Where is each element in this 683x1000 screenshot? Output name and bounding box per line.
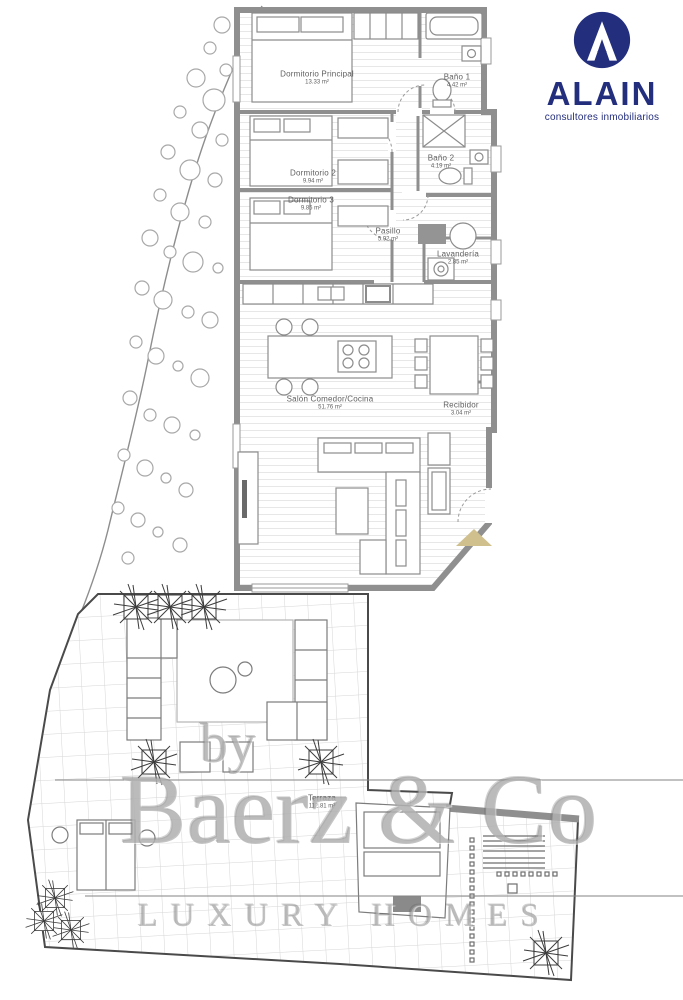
- kitchen-counter: [243, 284, 433, 304]
- watermark-tagline: LUXURY HOMES: [120, 898, 570, 935]
- room-label-bano-2: Baño 2 4.19 m²: [428, 154, 455, 171]
- room-label-lavanderia: Lavandería 2.85 m²: [437, 250, 479, 267]
- logo-name: ALAIN: [534, 77, 670, 110]
- boiler: [450, 223, 476, 249]
- room-label-dormitorio-2: Dormitorio 2 9.94 m²: [290, 169, 336, 186]
- alain-logo-icon: [572, 10, 632, 70]
- garden-stones: [112, 17, 232, 564]
- room-label-salon-comedor-cocina: Salón Comedor/Cocina 51.76 m²: [287, 395, 374, 412]
- logo-tagline: consultores inmobiliarios: [534, 112, 670, 123]
- coffee-table: [336, 488, 368, 534]
- tv: [242, 480, 247, 518]
- hall-cabinet: [418, 224, 446, 244]
- entry-closets: [428, 433, 450, 514]
- watermark-rule-bottom: [85, 895, 683, 897]
- room-label-recibidor: Recibidor 3.04 m²: [443, 401, 479, 418]
- room-label-dormitorio-3: Dormitorio 3 9.85 m²: [288, 196, 334, 213]
- alain-logo: ALAIN consultores inmobiliarios: [534, 10, 670, 123]
- watermark-brand: Baerz & Co: [120, 760, 570, 860]
- outdoor-table: [210, 667, 236, 693]
- room-label-bano-1: Baño 1 4.42 m²: [444, 73, 471, 90]
- room-label-dormitorio-principal: Dormitorio Principal 13.33 m²: [280, 70, 354, 87]
- dining-table: [415, 336, 493, 394]
- room-label-pasillo: Pasillo 5.92 m²: [376, 227, 401, 244]
- floorplan-page: Dormitorio Principal 13.33 m² Baño 1 4.4…: [0, 0, 683, 1000]
